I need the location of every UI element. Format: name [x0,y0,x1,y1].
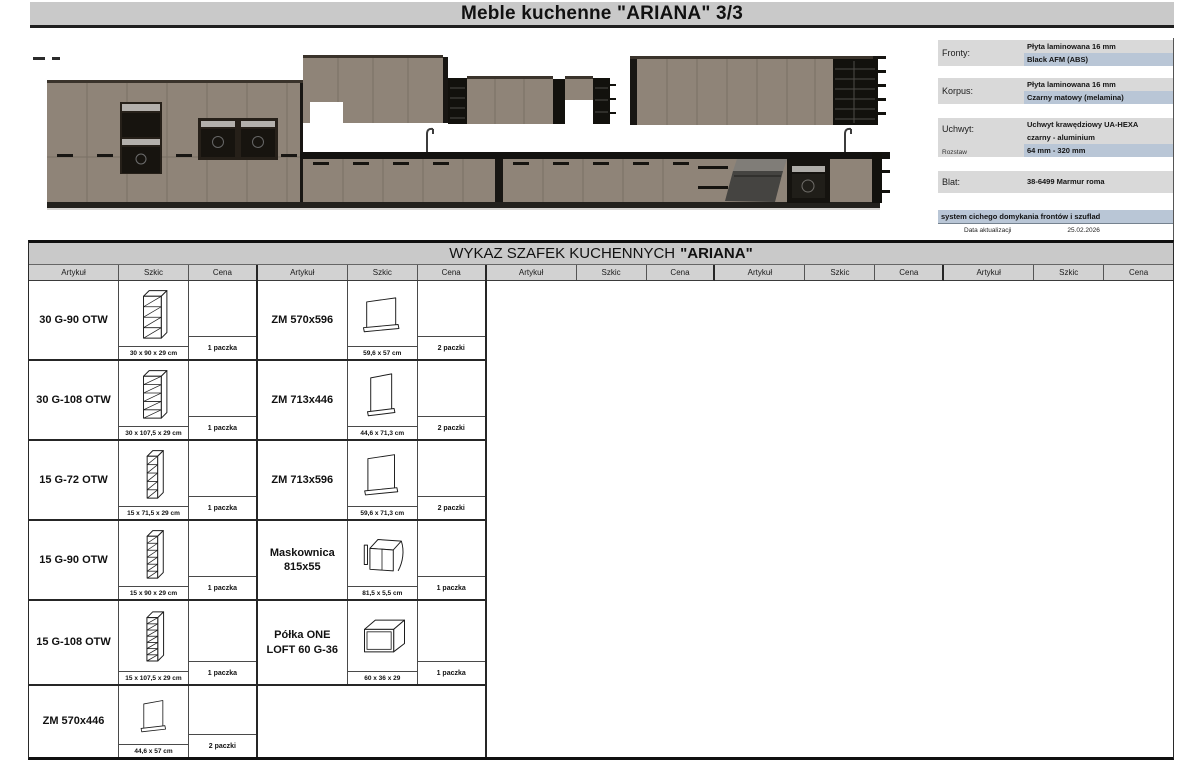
cover-panel-815x55-sketch-icon [348,521,417,586]
package-count: 2 paczki [189,734,256,757]
package-count: 1 paczka [418,661,485,684]
column-header-szkic: Szkic [1034,265,1104,280]
update-date-row: Data aktualizacji25.02.2026 [938,224,1173,236]
column-header-szkic: Szkic [119,265,189,280]
package-count: 2 paczki [418,496,485,519]
catalog-row: ZM 570x44644,6 x 57 cm2 paczki [29,686,256,757]
base-cabinets [303,159,872,202]
spec-label: Korpus: [942,86,973,96]
price-cell [189,521,256,576]
page-title: Meble kuchenne "ARIANA" 3/3 [30,2,1174,28]
spec-value-line: Płyta laminowana 16 mm [1024,40,1173,53]
catalog-row: Maskownica 815x5581,5 x 5,5 cm1 paczka [258,521,485,601]
dimension-label: 81,5 x 5,5 cm [348,586,417,599]
column-header-szkic: Szkic [348,265,418,280]
price-cell [189,686,256,734]
article-name: 15 G-108 OTW [29,601,119,684]
column-header-cena: Cena [1104,265,1173,280]
dimension-label: 15 x 71,5 x 29 cm [119,506,188,519]
catalog-page: Meble kuchenne "ARIANA" 3/3 [0,0,1200,767]
dishwasher-panel-713x596-sketch-icon [348,441,417,506]
open-shelf-cabinet-4-sketch-icon [119,281,188,346]
article-name: 15 G-72 OTW [29,441,119,519]
dishwasher-panel-570x596-sketch-icon [348,281,417,346]
faucet-icon [427,129,433,152]
catalog-heading-brand: "ARIANA" [680,245,753,262]
price-cell [418,601,485,661]
soft-close-note: system cichego domykania frontów i szufl… [938,210,1173,224]
price-cell [189,441,256,496]
countertop [300,152,890,159]
column-header-artykul: Artykuł [715,265,805,280]
price-cell [418,521,485,576]
column-header-artykul: Artykuł [487,265,577,280]
dishwasher-panel-570x446-sketch-icon [119,686,188,744]
catalog-row: ZM 570x59659,6 x 57 cm2 paczki [258,281,485,361]
catalog-row: 15 G-72 OTW15 x 71,5 x 29 cm1 paczka [29,441,256,521]
package-count: 1 paczka [418,576,485,599]
base-end-shelves [872,152,890,203]
column-header-cena: Cena [418,265,485,280]
price-cell [189,361,256,416]
column-header-szkic: Szkic [577,265,647,280]
article-name: ZM 713x446 [258,361,348,439]
column-header-szkic: Szkic [805,265,875,280]
catalog-group: ArtykułSzkicCenaZM 570x59659,6 x 57 cm2 … [258,265,487,757]
column-header-row: ArtykułSzkicCena [487,265,716,281]
column-header-artykul: Artykuł [29,265,119,280]
price-cell [418,281,485,336]
price-cell [418,361,485,416]
spec-value-line: 38-6499 Marmur roma [1024,171,1173,193]
price-cell [189,601,256,661]
faucet-icon-2 [845,129,851,152]
price-cell [189,281,256,336]
spec-block: Fronty:Płyta laminowana 16 mmBlack AFM (… [938,40,1173,66]
spec-value-line: Czarny matowy (melamina) [1024,91,1173,104]
catalog-heading-text: WYKAZ SZAFEK KUCHENNYCH [449,245,675,262]
column-header-artykul: Artykuł [258,265,348,280]
catalog-table: WYKAZ SZAFEK KUCHENNYCH "ARIANA" Artykuł… [28,240,1174,760]
catalog-row: 15 G-90 OTW15 x 90 x 29 cm1 paczka [29,521,256,601]
update-date: 25.02.2026 [1067,227,1100,234]
kitchen-visualization [30,40,890,212]
column-header-row: ArtykułSzkicCena [29,265,256,281]
dimension-label: 44,6 x 71,3 cm [348,426,417,439]
wall-cabinets-b [448,76,616,124]
spec-label: Blat: [942,177,960,187]
base-oven [787,159,830,203]
catalog-row: 30 G-90 OTW30 x 90 x 29 cm1 paczka [29,281,256,361]
spec-value-line: czarny - aluminium [1024,131,1173,144]
column-header-row: ArtykułSzkicCena [715,265,944,281]
double-ovens [198,118,278,160]
package-count: 1 paczka [189,661,256,684]
wall-cabinets-c [630,56,886,125]
package-count: 1 paczka [189,576,256,599]
dimension-label: 15 x 90 x 29 cm [119,586,188,599]
price-cell [418,441,485,496]
article-name: ZM 570x446 [29,686,119,757]
catalog-group: ArtykułSzkicCena [487,265,716,757]
catalog-group: ArtykułSzkicCena [944,265,1173,757]
catalog-row: 15 G-108 OTW15 x 107,5 x 29 cm1 paczka [29,601,256,686]
catalog-row: ZM 713x59659,6 x 71,3 cm2 paczki [258,441,485,521]
open-shelf-cabinet-5-sketch-icon [119,361,188,426]
dimension-label: 59,6 x 71,3 cm [348,506,417,519]
catalog-row: ZM 713x44644,6 x 71,3 cm2 paczki [258,361,485,441]
open-shelf-narrow-6-sketch-icon [119,521,188,586]
column-header-cena: Cena [189,265,256,280]
spec-value-line: 64 mm - 320 mm [1024,144,1173,157]
wall-cabinets-a [303,55,448,123]
column-header-cena: Cena [875,265,942,280]
dishwasher-panel-713x446-sketch-icon [348,361,417,426]
article-name: 30 G-108 OTW [29,361,119,439]
column-header-row: ArtykułSzkicCena [258,265,485,281]
article-name: 30 G-90 OTW [29,281,119,359]
catalog-row: Półka ONE LOFT 60 G-3660 x 36 x 291 pacz… [258,601,485,686]
spec-value-line: Uchwyt krawędziowy UA-HEXA [1024,118,1173,131]
spec-panel: Fronty:Płyta laminowana 16 mmBlack AFM (… [938,38,1174,240]
dimension-label: 44,6 x 57 cm [119,744,188,757]
package-count: 1 paczka [189,416,256,439]
article-name: ZM 713x596 [258,441,348,519]
article-name: Półka ONE LOFT 60 G-36 [258,601,348,684]
kitchen-render-svg [30,40,890,212]
page-title-text: Meble kuchenne "ARIANA" 3/3 [461,3,743,25]
spec-sublabel: Rozstaw [942,149,967,156]
column-header-cena: Cena [647,265,714,280]
dimension-label: 30 x 90 x 29 cm [119,346,188,359]
column-header-artykul: Artykuł [944,265,1034,280]
open-shelf-narrow-5-sketch-icon [119,441,188,506]
spec-block: Uchwyt:RozstawUchwyt krawędziowy UA-HEXA… [938,118,1173,157]
catalog-heading: WYKAZ SZAFEK KUCHENNYCH "ARIANA" [29,243,1173,265]
article-name: ZM 570x596 [258,281,348,359]
plinth [47,202,880,210]
article-name: 15 G-90 OTW [29,521,119,599]
catalog-grid: ArtykułSzkicCena30 G-90 OTW30 x 90 x 29 … [29,265,1173,757]
spec-label: Fronty: [942,48,970,58]
spec-value-line: Black AFM (ABS) [1024,53,1173,66]
spec-label: Uchwyt: [942,124,974,134]
spec-block: Korpus:Płyta laminowana 16 mmCzarny mato… [938,78,1173,104]
catalog-group: ArtykułSzkicCena30 G-90 OTW30 x 90 x 29 … [29,265,258,757]
article-name: Maskownica 815x55 [258,521,348,599]
spec-block: Blat:38-6499 Marmur roma [938,171,1173,193]
dimension-label: 15 x 107,5 x 29 cm [119,671,188,684]
package-count: 2 paczki [418,416,485,439]
package-count: 2 paczki [418,336,485,359]
package-count: 1 paczka [189,336,256,359]
built-in-oven-stack [120,102,162,174]
catalog-row: 30 G-108 OTW30 x 107,5 x 29 cm1 paczka [29,361,256,441]
column-header-row: ArtykułSzkicCena [944,265,1173,281]
update-label: Data aktualizacji [964,227,1011,234]
open-shelf-narrow-7-sketch-icon [119,601,188,671]
package-count: 1 paczka [189,496,256,519]
open-box-shelf-sketch-icon [348,601,417,671]
spec-value-line: Płyta laminowana 16 mm [1024,78,1173,91]
dimension-label: 59,6 x 57 cm [348,346,417,359]
catalog-group: ArtykułSzkicCena [715,265,944,757]
dimension-label: 30 x 107,5 x 29 cm [119,426,188,439]
dimension-label: 60 x 36 x 29 [348,671,417,684]
